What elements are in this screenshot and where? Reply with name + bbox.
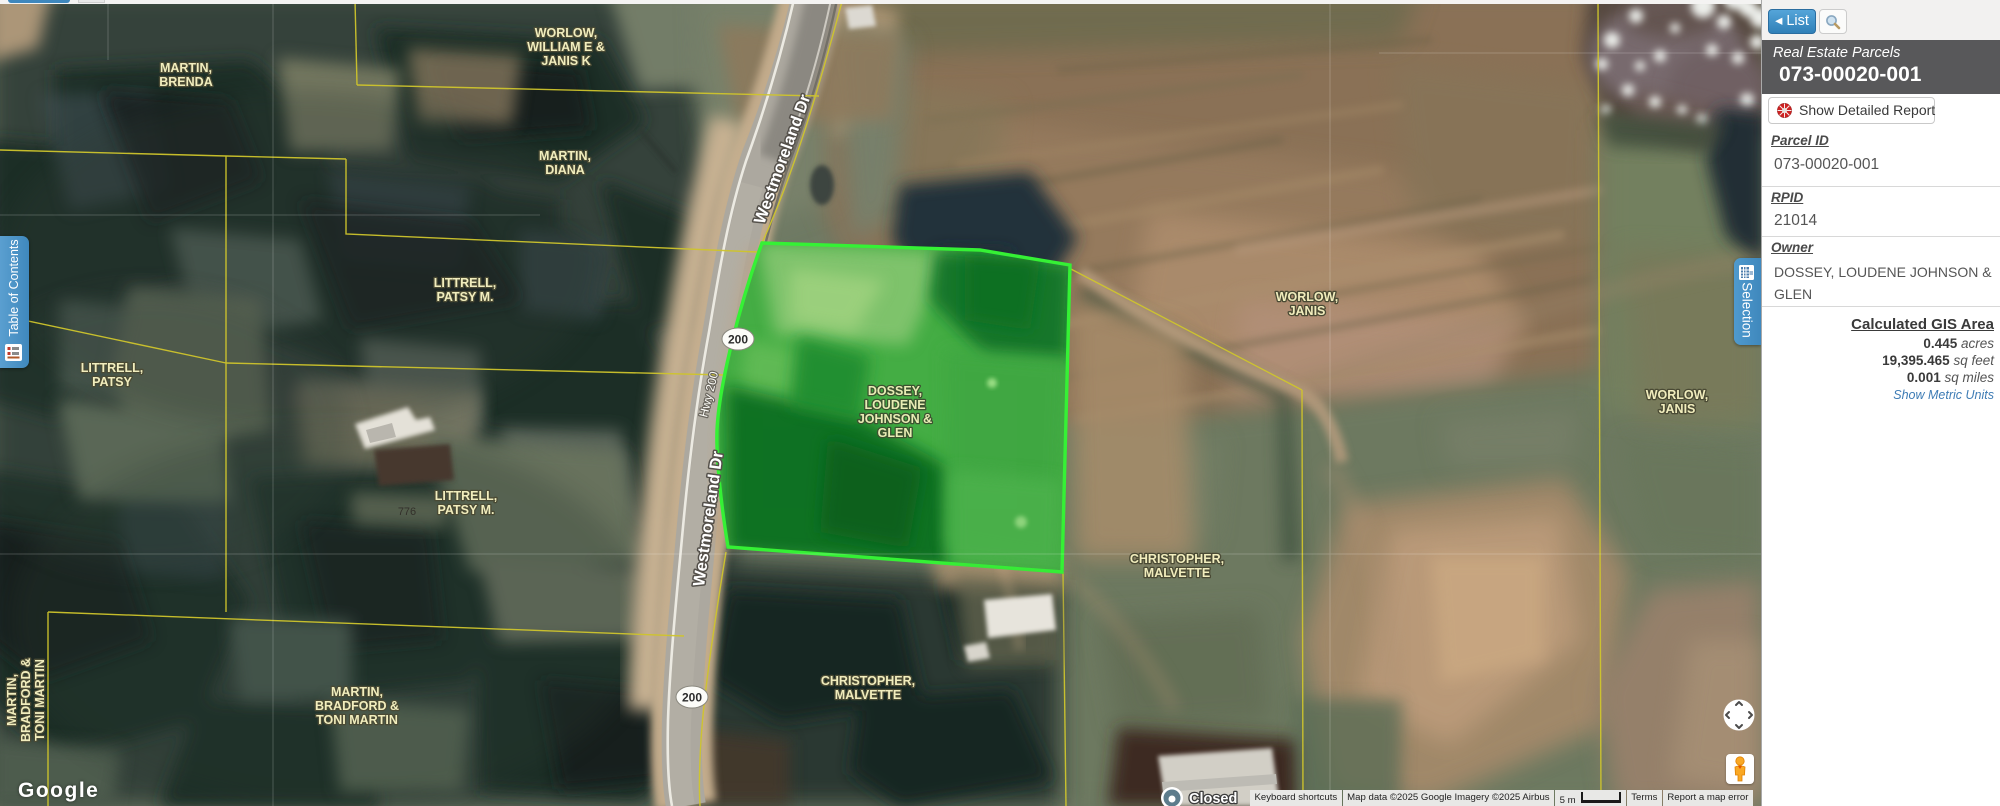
svg-text:LITTRELL,: LITTRELL, — [81, 361, 144, 375]
svg-text:BRENDA: BRENDA — [159, 75, 212, 89]
svg-text:DOSSEY,: DOSSEY, — [868, 384, 922, 398]
svg-text:CHRISTOPHER,: CHRISTOPHER, — [821, 674, 915, 688]
svg-text:TONI MARTIN: TONI MARTIN — [316, 713, 398, 727]
svg-text:776: 776 — [398, 506, 416, 518]
svg-text:LITTRELL,: LITTRELL, — [435, 489, 498, 503]
svg-text:MALVETTE: MALVETTE — [1144, 566, 1210, 580]
svg-text:200: 200 — [682, 691, 702, 705]
svg-text:WORLOW,: WORLOW, — [1646, 388, 1709, 402]
svg-text:JOHNSON &: JOHNSON & — [858, 412, 932, 426]
svg-text:Closed: Closed — [1189, 791, 1237, 806]
svg-text:CHRISTOPHER,: CHRISTOPHER, — [1130, 552, 1224, 566]
svg-text:WILLIAM E &: WILLIAM E & — [527, 40, 605, 54]
svg-text:MARTIN,: MARTIN, — [539, 149, 591, 163]
svg-text:MARTIN,: MARTIN, — [331, 685, 383, 699]
svg-text:JANIS: JANIS — [1659, 402, 1696, 416]
svg-text:LITTRELL,: LITTRELL, — [434, 276, 497, 290]
svg-text:LOUDENE: LOUDENE — [864, 398, 925, 412]
svg-text:JANIS K: JANIS K — [541, 54, 590, 68]
svg-text:BRADFORD &: BRADFORD & — [315, 699, 399, 713]
svg-text:PATSY: PATSY — [92, 375, 132, 389]
svg-text:PATSY M.: PATSY M. — [438, 503, 495, 517]
svg-text:DIANA: DIANA — [545, 163, 585, 177]
svg-text:MARTIN,: MARTIN, — [160, 61, 212, 75]
svg-text:BRADFORD &: BRADFORD & — [19, 658, 33, 742]
svg-text:JANIS: JANIS — [1289, 304, 1326, 318]
svg-text:WORLOW,: WORLOW, — [535, 26, 598, 40]
svg-text:200: 200 — [728, 333, 748, 347]
svg-text:MARTIN,: MARTIN, — [5, 674, 19, 726]
svg-text:WORLOW,: WORLOW, — [1276, 290, 1339, 304]
svg-text:PATSY M.: PATSY M. — [437, 290, 494, 304]
svg-text:MALVETTE: MALVETTE — [835, 688, 901, 702]
svg-text:GLEN: GLEN — [878, 426, 913, 440]
svg-text:TONI MARTIN: TONI MARTIN — [33, 659, 47, 741]
